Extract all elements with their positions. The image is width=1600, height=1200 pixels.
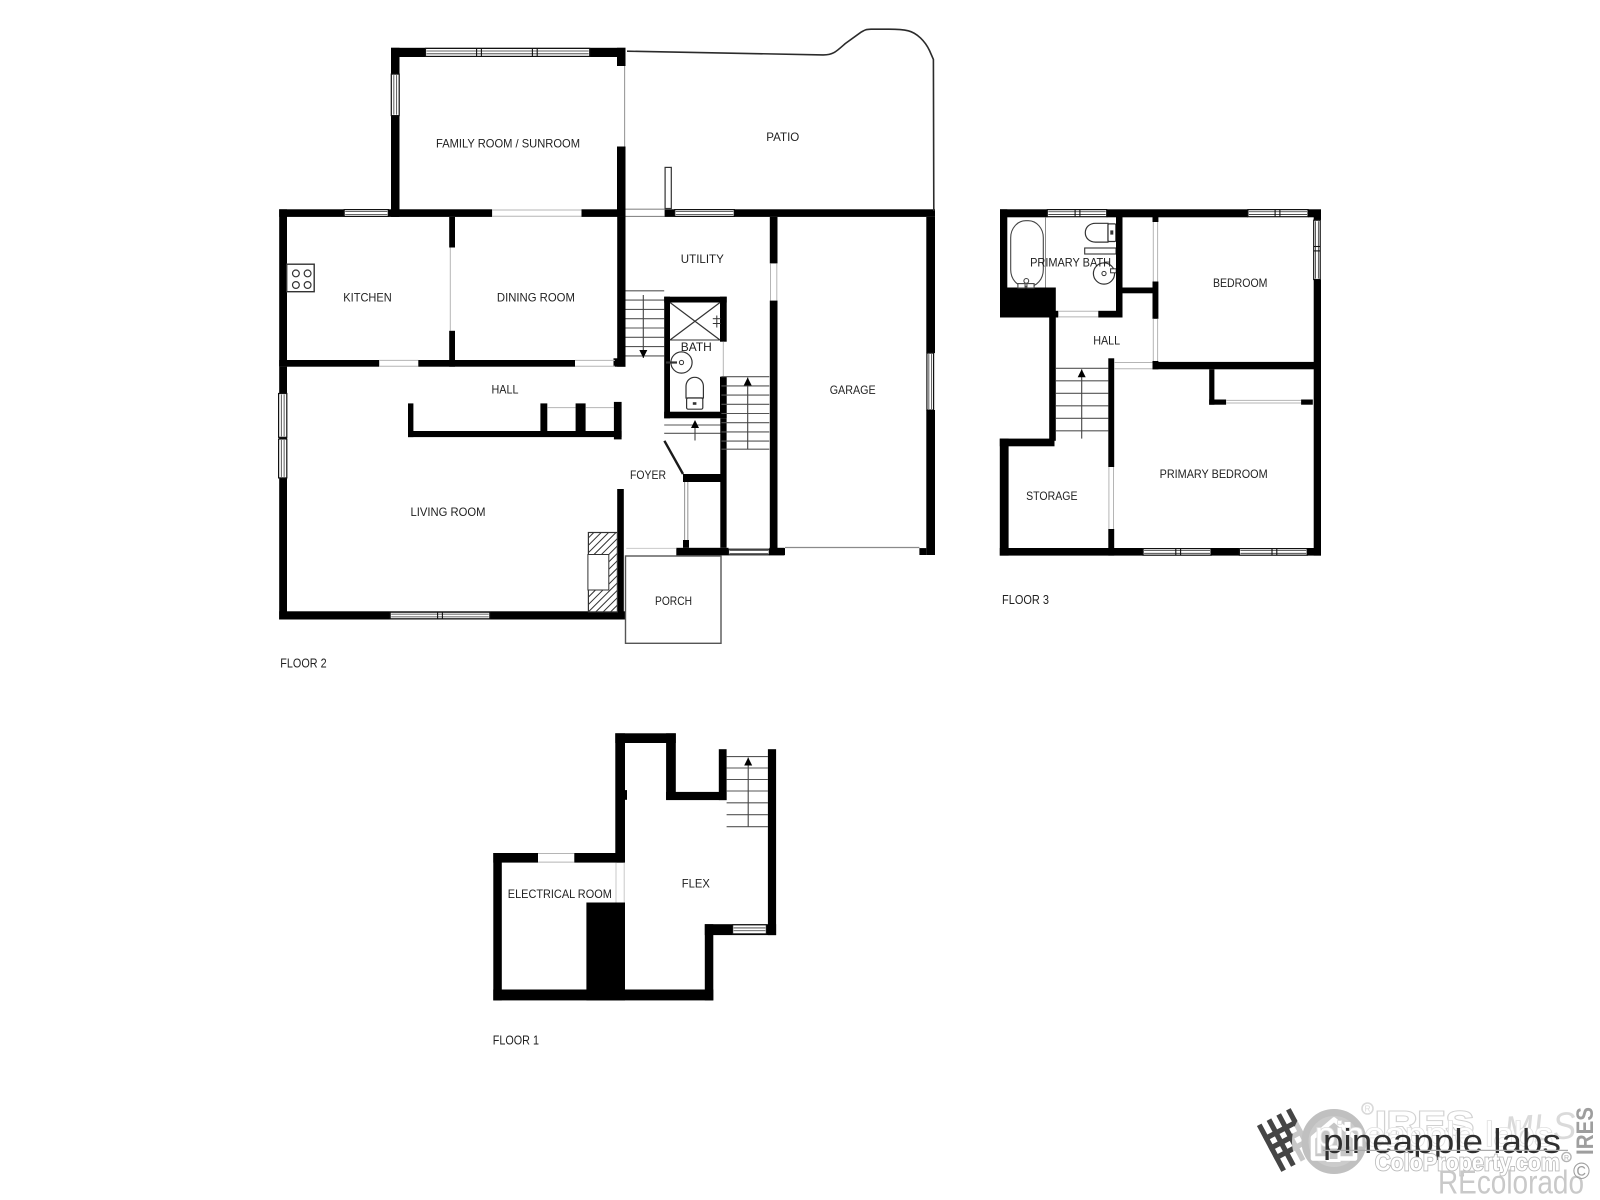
svg-text:FLEX: FLEX <box>682 877 710 891</box>
svg-text:STORAGE: STORAGE <box>1026 489 1077 503</box>
svg-text:ELECTRICAL ROOM: ELECTRICAL ROOM <box>508 887 612 901</box>
svg-text:KITCHEN: KITCHEN <box>343 291 391 305</box>
svg-text:PORCH: PORCH <box>655 594 692 608</box>
svg-text:PRIMARY BATH: PRIMARY BATH <box>1030 256 1111 270</box>
svg-text:FLOOR 3: FLOOR 3 <box>1002 593 1049 607</box>
svg-text:HALL: HALL <box>492 382 519 396</box>
svg-text:FLOOR 2: FLOOR 2 <box>280 657 326 671</box>
svg-text:FLOOR 1: FLOOR 1 <box>493 1034 539 1048</box>
svg-text:BEDROOM: BEDROOM <box>1213 276 1268 290</box>
svg-text:R: R <box>1564 1155 1569 1162</box>
svg-text:DINING ROOM: DINING ROOM <box>497 291 575 305</box>
svg-text:HALL: HALL <box>1093 334 1120 348</box>
svg-text:UTILITY: UTILITY <box>681 252 724 266</box>
svg-text:R: R <box>1365 1105 1371 1114</box>
svg-text:REcolorado: REcolorado <box>1438 1164 1584 1200</box>
svg-text:BATH: BATH <box>681 340 712 354</box>
svg-text:PATIO: PATIO <box>766 130 799 144</box>
svg-text:PRIMARY BEDROOM: PRIMARY BEDROOM <box>1160 467 1268 481</box>
svg-text:FOYER: FOYER <box>630 468 666 482</box>
svg-text:IRES: IRES <box>1572 1107 1599 1155</box>
svg-text:LIVING ROOM: LIVING ROOM <box>411 505 486 519</box>
svg-text:GARAGE: GARAGE <box>830 383 876 397</box>
svg-text:FAMILY ROOM / SUNROOM: FAMILY ROOM / SUNROOM <box>436 136 580 150</box>
svg-text:©: © <box>1573 1158 1590 1184</box>
